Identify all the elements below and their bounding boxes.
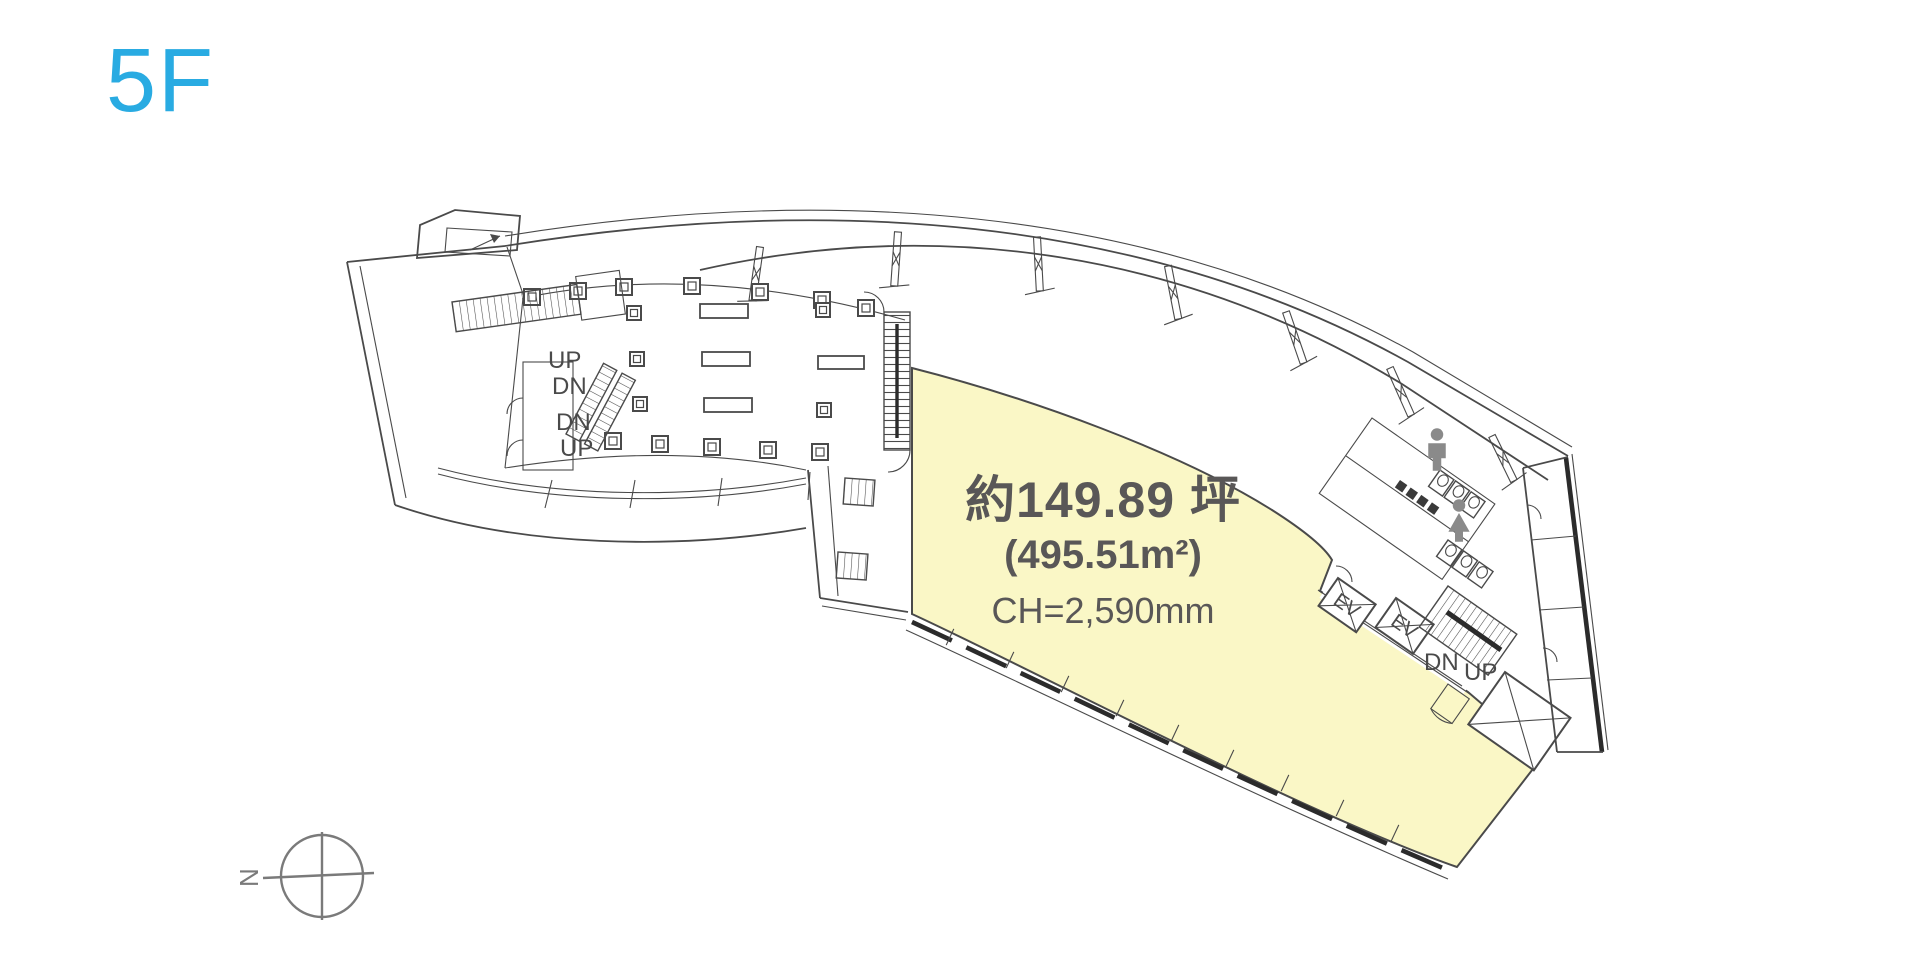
escalator-label-dn-2: DN [556, 409, 591, 436]
compass: N [234, 832, 374, 920]
escalator-label-dn-1: DN [552, 373, 587, 400]
side-stair [836, 292, 910, 580]
area-sqm: (495.51m²) [938, 532, 1268, 578]
floorplan-page: 5F [0, 0, 1920, 960]
area-label-block: 約149.89 坪 (495.51m²) CH=2,590mm [938, 472, 1268, 631]
compass-north-label: N [234, 868, 264, 887]
core-stair-up-label: UP [1464, 659, 1497, 686]
entrance-stair [417, 210, 625, 338]
male-icon [1428, 428, 1446, 471]
escalator-label-up-1: UP [548, 347, 581, 374]
ceiling-height: CH=2,590mm [938, 590, 1268, 631]
area-tsubo: 約149.89 坪 [938, 472, 1268, 530]
escalator-label-up-2: UP [560, 435, 593, 462]
core-stair-dn-label: DN [1424, 649, 1459, 676]
hall-interior-fixtures [627, 303, 864, 417]
